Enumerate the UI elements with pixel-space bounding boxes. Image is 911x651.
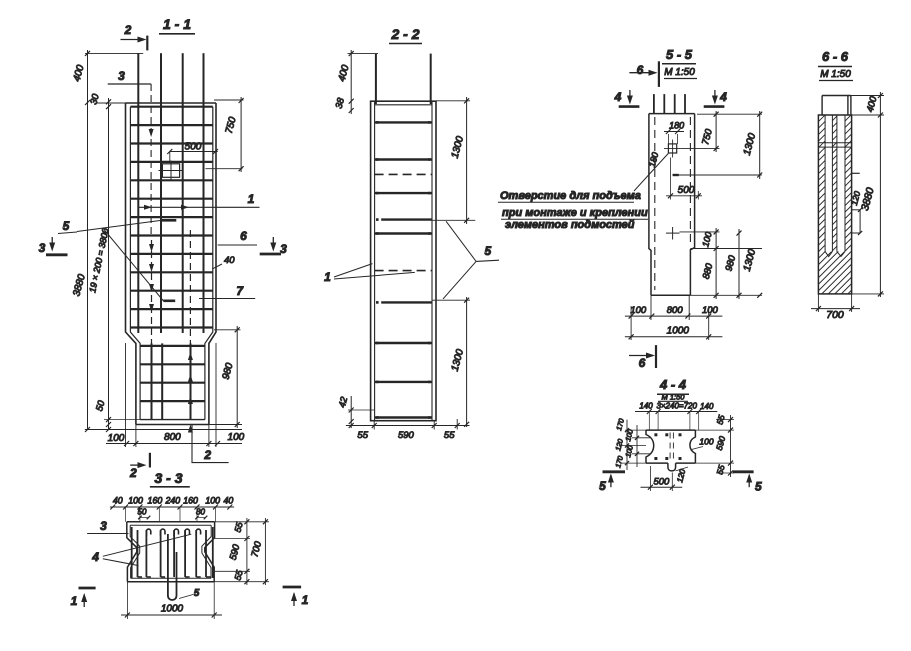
svg-text:3: 3 [100, 519, 107, 533]
svg-text:М 1:50: М 1:50 [662, 393, 686, 402]
svg-text:100: 100 [108, 433, 125, 444]
svg-text:5: 5 [194, 588, 200, 599]
svg-text:5: 5 [755, 480, 762, 494]
svg-text:Отверстие для подъема: Отверстие для подъема [500, 190, 641, 202]
svg-text:1: 1 [71, 594, 78, 608]
svg-text:4 - 4: 4 - 4 [659, 377, 687, 392]
svg-text:500: 500 [185, 142, 202, 153]
svg-text:3: 3 [280, 242, 287, 256]
svg-text:6: 6 [637, 63, 644, 77]
svg-text:М 1:50: М 1:50 [820, 69, 851, 80]
svg-text:100: 100 [205, 496, 220, 506]
svg-text:5: 5 [484, 244, 491, 258]
svg-text:700: 700 [826, 309, 844, 321]
svg-text:800: 800 [164, 432, 181, 443]
svg-text:500: 500 [653, 477, 670, 488]
svg-text:80: 80 [196, 508, 205, 517]
svg-text:2: 2 [203, 448, 211, 462]
svg-text:1000: 1000 [667, 326, 690, 337]
svg-text:100: 100 [128, 496, 143, 506]
svg-text:100: 100 [699, 437, 713, 447]
svg-text:2 - 2: 2 - 2 [390, 26, 419, 42]
svg-text:180: 180 [669, 121, 684, 131]
svg-text:4: 4 [614, 90, 622, 104]
svg-text:5: 5 [599, 479, 606, 493]
svg-text:4: 4 [719, 90, 727, 104]
svg-text:1: 1 [324, 270, 331, 284]
svg-text:100: 100 [702, 305, 719, 316]
svg-text:800: 800 [667, 305, 684, 316]
svg-text:2: 2 [129, 466, 137, 480]
svg-text:40: 40 [224, 496, 234, 506]
svg-text:160: 160 [148, 496, 163, 506]
svg-text:40: 40 [113, 496, 123, 506]
svg-text:элементов подмостей: элементов подмостей [505, 219, 635, 231]
svg-text:590: 590 [398, 430, 415, 441]
svg-text:при монтаже и креплении: при монтаже и креплении [502, 207, 648, 219]
svg-text:100: 100 [630, 305, 647, 316]
svg-text:3: 3 [118, 69, 125, 83]
svg-text:5: 5 [63, 219, 70, 233]
svg-text:40: 40 [224, 255, 235, 266]
svg-text:6: 6 [240, 229, 247, 243]
svg-text:240: 240 [164, 496, 180, 506]
svg-text:1000: 1000 [161, 604, 184, 615]
svg-text:3×240=720: 3×240=720 [656, 402, 697, 411]
svg-text:1: 1 [248, 192, 255, 206]
svg-text:6 - 6: 6 - 6 [822, 49, 849, 64]
svg-text:140: 140 [700, 402, 714, 411]
svg-text:4: 4 [91, 550, 99, 564]
svg-text:1: 1 [302, 593, 309, 607]
svg-text:50: 50 [138, 508, 147, 517]
svg-text:55: 55 [357, 430, 368, 441]
svg-text:500: 500 [678, 185, 695, 196]
svg-text:100: 100 [228, 432, 245, 443]
svg-text:6: 6 [639, 356, 646, 370]
svg-text:М 1:50: М 1:50 [664, 67, 695, 78]
svg-text:1 - 1: 1 - 1 [163, 16, 191, 32]
svg-text:160: 160 [183, 496, 198, 506]
svg-text:3 - 3: 3 - 3 [154, 470, 182, 486]
svg-text:3: 3 [39, 241, 46, 255]
svg-text:55: 55 [444, 430, 455, 441]
svg-text:5 - 5: 5 - 5 [666, 47, 693, 62]
svg-text:2: 2 [124, 23, 132, 37]
